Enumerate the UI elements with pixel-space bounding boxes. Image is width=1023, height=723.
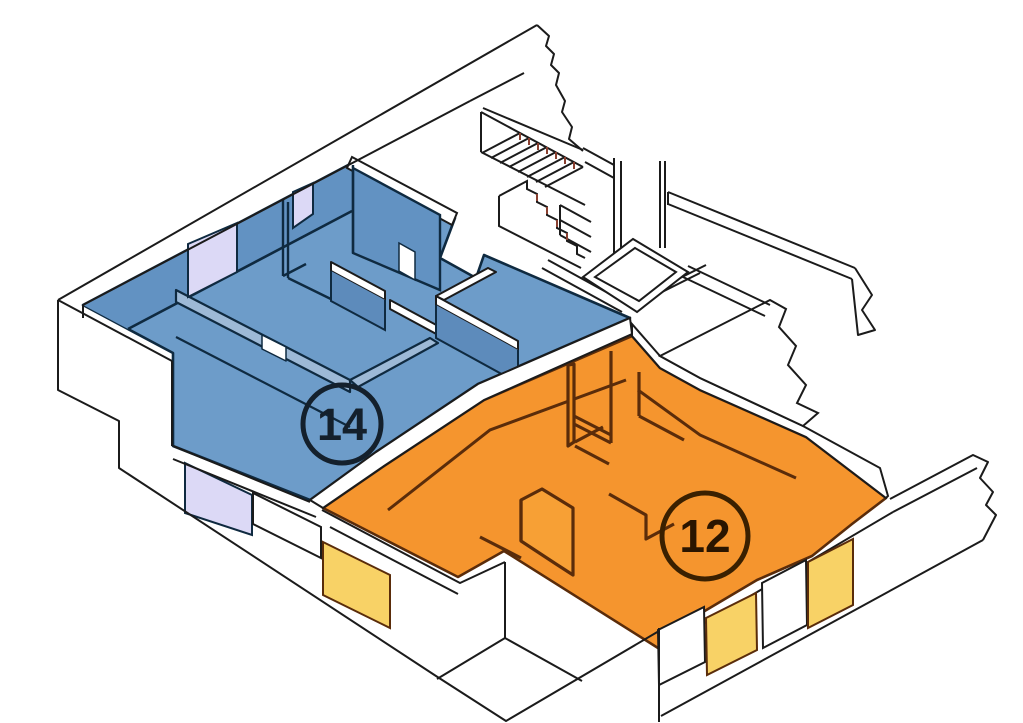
svg-text:12: 12	[679, 510, 730, 562]
svg-text:14: 14	[317, 399, 367, 450]
